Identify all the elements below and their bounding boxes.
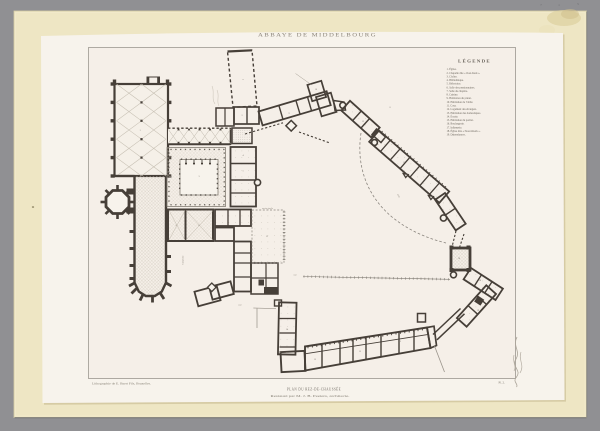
svg-text:3. Cloître.: 3. Cloître. bbox=[447, 76, 458, 79]
svg-text:1: 1 bbox=[558, 3, 560, 7]
svg-text:12: 12 bbox=[403, 162, 405, 164]
svg-text:10. Habitation de l’abbé.: 10. Habitation de l’abbé. bbox=[447, 101, 474, 104]
svg-text:18. Église dite « Noord-Kerk »: 18. Église dite « Noord-Kerk ». bbox=[447, 130, 481, 133]
svg-text:8. Cuisine.: 8. Cuisine. bbox=[447, 94, 459, 97]
svg-text:13. Habitation des domestiques: 13. Habitation des domestiques. bbox=[447, 112, 482, 115]
svg-text:mur: mur bbox=[293, 275, 296, 277]
svg-text:12. Logement des étrangers.: 12. Logement des étrangers. bbox=[447, 108, 478, 111]
svg-text:2: 2 bbox=[241, 115, 242, 117]
svg-text:19: 19 bbox=[477, 310, 479, 312]
svg-text:7. Salle du chapitre.: 7. Salle du chapitre. bbox=[447, 90, 469, 93]
svg-text:5. Réfectoire.: 5. Réfectoire. bbox=[447, 83, 462, 86]
svg-text:19. Dépendances.: 19. Dépendances. bbox=[447, 134, 466, 137]
svg-text:LÉGENDE: LÉGENDE bbox=[458, 58, 491, 63]
svg-text:11: 11 bbox=[266, 236, 268, 238]
svg-text:16. Boulangerie.: 16. Boulangerie. bbox=[447, 123, 465, 126]
svg-text:Restauré par M. J. B. Peeters,: Restauré par M. J. B. Peeters, architect… bbox=[271, 394, 350, 398]
svg-text:12: 12 bbox=[362, 121, 364, 123]
svg-text:2. Chapelle dite « Oost-Kerk »: 2. Chapelle dite « Oost-Kerk ». bbox=[447, 72, 481, 75]
svg-text:Cimetière: Cimetière bbox=[183, 255, 185, 264]
svg-text:Lithographie de E. Baert Fils,: Lithographie de E. Baert Fils, Bruxelles… bbox=[92, 383, 151, 386]
svg-text:PLAN DU REZ-DE-CHAUSSÉE: PLAN DU REZ-DE-CHAUSSÉE bbox=[287, 387, 341, 392]
svg-text:6. Salle des pensionnaires.: 6. Salle des pensionnaires. bbox=[447, 86, 476, 89]
svg-text:14. Écurie.: 14. Écurie. bbox=[447, 115, 459, 118]
svg-text:Pl. 2.: Pl. 2. bbox=[499, 381, 506, 385]
svg-text:1. Église.: 1. Église. bbox=[447, 68, 457, 71]
svg-text:17. Infirmerie.: 17. Infirmerie. bbox=[447, 126, 463, 129]
svg-text:15. Habitation du portier.: 15. Habitation du portier. bbox=[447, 119, 474, 122]
svg-text:ABBAYE DE MIDDELBOURG: ABBAYE DE MIDDELBOURG bbox=[258, 33, 377, 38]
svg-text:7: 7 bbox=[540, 3, 542, 7]
svg-text:9. Habitation du prieur.: 9. Habitation du prieur. bbox=[447, 97, 472, 100]
svg-text:4. Bibliothèque.: 4. Bibliothèque. bbox=[447, 79, 465, 82]
svg-text:ancien jardin: ancien jardin bbox=[262, 208, 273, 210]
svg-text:5: 5 bbox=[577, 2, 579, 6]
svg-text:9: 9 bbox=[288, 113, 289, 115]
svg-text:1: 1 bbox=[139, 130, 140, 132]
svg-text:cour: cour bbox=[238, 305, 242, 307]
svg-text:11. Cour.: 11. Cour. bbox=[447, 105, 457, 108]
